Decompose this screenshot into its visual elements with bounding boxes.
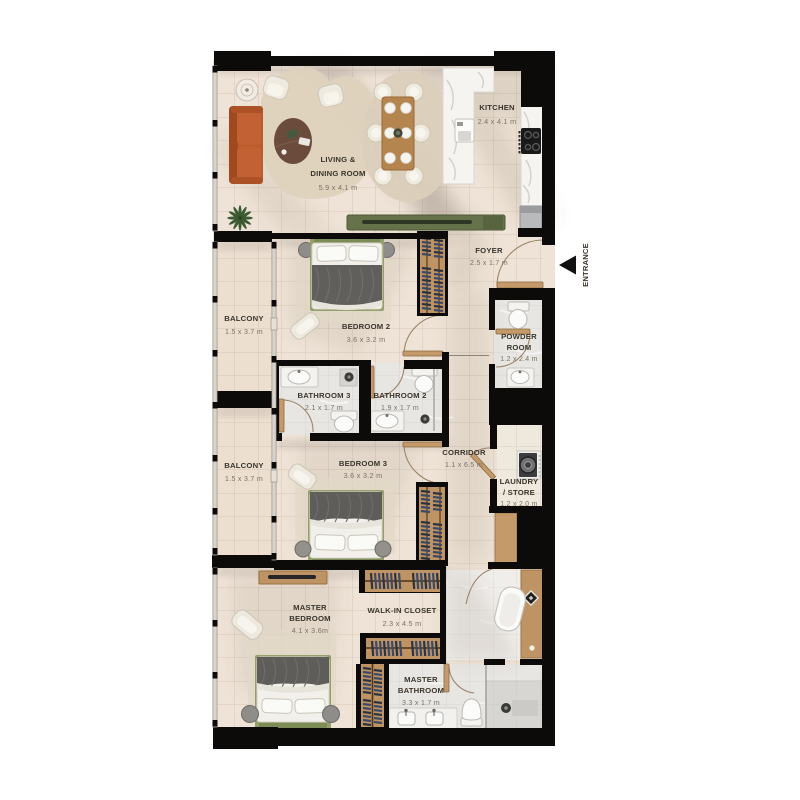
svg-text:1.1 x 6.5 m: 1.1 x 6.5 m (445, 462, 483, 469)
svg-text:KITCHEN: KITCHEN (479, 103, 515, 112)
svg-text:1.2 x 2.0 m: 1.2 x 2.0 m (500, 501, 537, 508)
svg-text:1.9 x 1.7 m: 1.9 x 1.7 m (381, 405, 419, 412)
svg-text:MASTER: MASTER (293, 603, 327, 612)
svg-text:BALCONY: BALCONY (224, 461, 263, 470)
svg-text:2.1 x 1.7 m: 2.1 x 1.7 m (305, 405, 343, 412)
svg-text:5.9 x 4.1 m: 5.9 x 4.1 m (319, 183, 358, 192)
svg-text:WALK-IN CLOSET: WALK-IN CLOSET (368, 606, 437, 615)
svg-text:POWDER: POWDER (501, 332, 537, 341)
svg-text:/ STORE: / STORE (503, 488, 535, 497)
svg-text:BALCONY: BALCONY (224, 314, 263, 323)
svg-text:1.5 x 3.7 m: 1.5 x 3.7 m (225, 329, 263, 336)
svg-text:1.5 x 3.7 m: 1.5 x 3.7 m (225, 476, 263, 483)
svg-text:3.6 x 3.2 m: 3.6 x 3.2 m (347, 335, 386, 344)
svg-text:BATHROOM: BATHROOM (398, 686, 444, 695)
svg-text:3.3 x 1.7 m: 3.3 x 1.7 m (402, 700, 440, 707)
svg-text:4.1 x 3.6m: 4.1 x 3.6m (292, 626, 329, 635)
svg-text:BEDROOM 2: BEDROOM 2 (342, 322, 390, 331)
svg-text:ENTRANCE: ENTRANCE (581, 243, 590, 287)
svg-text:2.4 x 4.1 m: 2.4 x 4.1 m (478, 117, 517, 126)
svg-text:3.6 x 3.2 m: 3.6 x 3.2 m (344, 471, 383, 480)
svg-text:ROOM: ROOM (507, 343, 532, 352)
svg-text:2.5 x 1.7 m: 2.5 x 1.7 m (470, 260, 508, 267)
svg-text:BEDROOM 3: BEDROOM 3 (339, 459, 387, 468)
svg-text:DINING ROOM: DINING ROOM (310, 169, 365, 178)
svg-text:LAUNDRY: LAUNDRY (500, 477, 539, 486)
svg-text:LIVING &: LIVING & (321, 155, 356, 164)
svg-text:BATHROOM 3: BATHROOM 3 (297, 391, 350, 400)
svg-text:BATHROOM 2: BATHROOM 2 (373, 391, 426, 400)
svg-text:FOYER: FOYER (475, 246, 503, 255)
svg-text:BEDROOM: BEDROOM (289, 614, 331, 623)
svg-text:2.3 x 4.5 m: 2.3 x 4.5 m (383, 619, 422, 628)
svg-text:CORRIDOR: CORRIDOR (442, 448, 486, 457)
svg-text:MASTER: MASTER (404, 675, 438, 684)
svg-text:1.2 x 2.4 m: 1.2 x 2.4 m (500, 356, 537, 363)
